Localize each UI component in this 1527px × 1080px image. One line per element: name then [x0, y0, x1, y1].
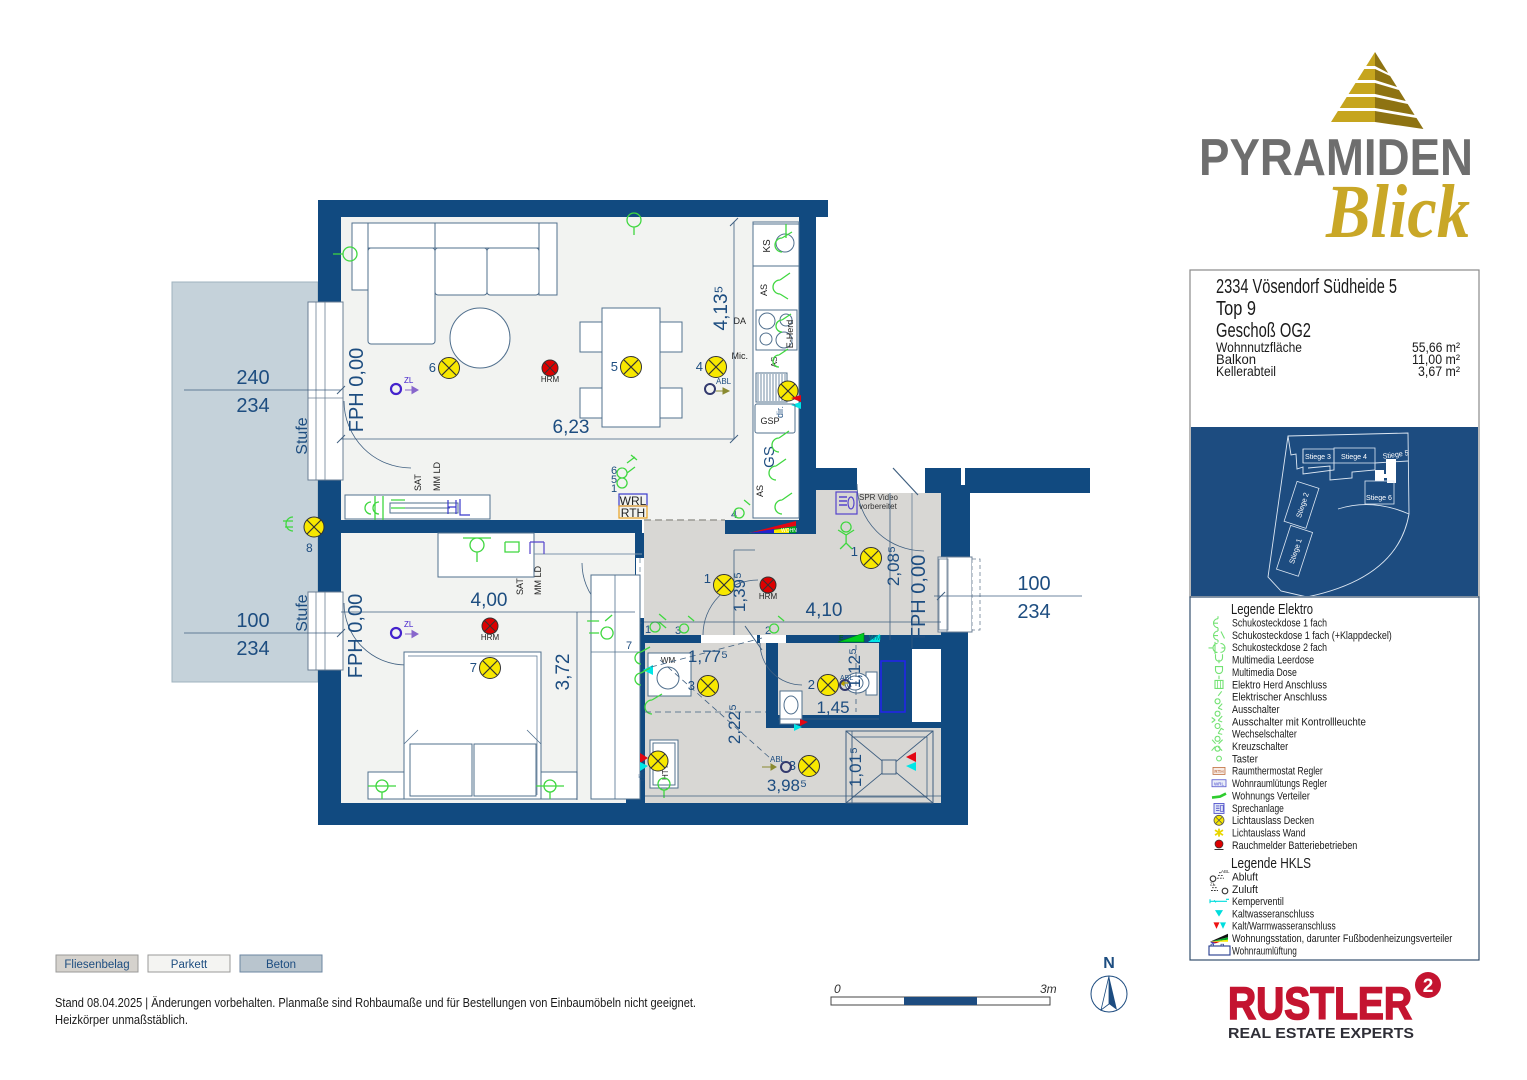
svg-text:ZL: ZL [404, 620, 414, 629]
svg-text:Abluft: Abluft [1232, 872, 1258, 884]
svg-text:ZL: ZL [404, 376, 414, 385]
svg-text:Blick: Blick [1325, 170, 1470, 254]
svg-text:100: 100 [1017, 573, 1050, 595]
svg-text:E: E [839, 635, 844, 642]
svg-text:4,00: 4,00 [471, 590, 508, 611]
svg-text:Legende Elektro: Legende Elektro [1231, 601, 1313, 618]
svg-text:Stiege 6: Stiege 6 [1366, 493, 1392, 502]
svg-text:AS: AS [755, 485, 765, 497]
svg-text:3,98⁵: 3,98⁵ [767, 776, 807, 795]
svg-text:MM LD: MM LD [533, 566, 543, 596]
svg-text:Ausschalter mit Kontrollleucht: Ausschalter mit Kontrollleuchte [1232, 716, 1366, 728]
svg-text:Heizkörper unmaßstäblich.: Heizkörper unmaßstäblich. [55, 1013, 188, 1027]
svg-text:1,45: 1,45 [816, 698, 849, 717]
svg-text:7: 7 [626, 640, 632, 652]
svg-text:RUSTLER: RUSTLER [1228, 978, 1412, 1029]
svg-text:6: 6 [429, 360, 436, 375]
svg-text:Kellerabteil: Kellerabteil [1216, 363, 1276, 379]
svg-text:100: 100 [236, 610, 269, 632]
svg-text:234: 234 [236, 638, 269, 660]
svg-text:HRM: HRM [481, 633, 500, 642]
svg-text:Multimedia Leerdose: Multimedia Leerdose [1232, 655, 1314, 667]
svg-text:240: 240 [236, 367, 269, 389]
svg-text:1: 1 [611, 483, 617, 495]
svg-text:2: 2 [1423, 976, 1434, 997]
svg-text:SAT: SAT [515, 578, 525, 595]
svg-text:8: 8 [306, 541, 313, 555]
svg-text:4,13⁵: 4,13⁵ [711, 286, 732, 331]
svg-text:Wechselschalter: Wechselschalter [1232, 729, 1297, 741]
svg-text:234: 234 [236, 395, 269, 417]
svg-text:GS: GS [761, 446, 778, 468]
svg-text:dir.: dir. [637, 769, 647, 781]
svg-text:HRM: HRM [541, 375, 560, 384]
svg-text:FPH 0,00: FPH 0,00 [908, 555, 930, 639]
svg-text:Ausschalter: Ausschalter [1232, 704, 1280, 716]
svg-text:WRL: WRL [1214, 781, 1224, 786]
svg-text:Sprechanlage: Sprechanlage [1232, 803, 1284, 815]
svg-text:Rauchmelder Batteriebetrieben: Rauchmelder Batteriebetrieben [1232, 840, 1357, 852]
svg-text:1,12⁵: 1,12⁵ [845, 648, 864, 688]
svg-text:Zuluft: Zuluft [1232, 884, 1258, 896]
svg-text:Top 9: Top 9 [1216, 298, 1256, 320]
svg-text:0: 0 [834, 982, 841, 996]
svg-text:Stand 08.04.2025 | Änderungen: Stand 08.04.2025 | Änderungen vorbehalte… [55, 996, 696, 1010]
svg-text:Kreuzschalter: Kreuzschalter [1232, 741, 1288, 753]
svg-text:5: 5 [611, 359, 618, 374]
svg-text:E-Herd: E-Herd [785, 320, 795, 349]
svg-text:FPH 0,00: FPH 0,00 [346, 348, 368, 432]
svg-text:Wohnraumlütungs Regler: Wohnraumlütungs Regler [1232, 778, 1327, 790]
svg-text:Taster: Taster [1232, 753, 1258, 765]
svg-text:Stufe: Stufe [294, 417, 311, 454]
svg-text:3,72: 3,72 [553, 654, 574, 691]
svg-text:Beton: Beton [266, 959, 296, 971]
svg-text:HRM: HRM [759, 592, 778, 601]
svg-text:6,23: 6,23 [553, 417, 590, 438]
svg-text:ABL: ABL [770, 755, 786, 764]
svg-text:Lichtauslass Wand: Lichtauslass Wand [1232, 828, 1305, 840]
svg-text:Kaltwasseranschluss: Kaltwasseranschluss [1232, 908, 1314, 920]
svg-text:Lichtauslass Decken: Lichtauslass Decken [1232, 815, 1314, 827]
svg-text:WOHN: WOHN [781, 528, 797, 534]
svg-text:AS: AS [759, 284, 769, 296]
svg-text:DA: DA [733, 316, 746, 326]
svg-text:2: 2 [808, 677, 815, 692]
svg-text:Elektro Herd Anschluss: Elektro Herd Anschluss [1232, 679, 1327, 691]
svg-text:RTH: RTH [621, 506, 645, 520]
svg-text:3m: 3m [1040, 982, 1057, 996]
svg-text:2,22⁵: 2,22⁵ [725, 704, 744, 744]
svg-text:Multimedia Dose: Multimedia Dose [1232, 667, 1297, 679]
svg-text:Wohnungsstation, darunter Fußb: Wohnungsstation, darunter Fußbodenheizun… [1232, 933, 1453, 945]
svg-text:Fliesenbelag: Fliesenbelag [64, 959, 129, 971]
svg-text:KS: KS [762, 239, 773, 253]
svg-text:Parkett: Parkett [171, 959, 208, 971]
svg-text:SAT: SAT [413, 474, 423, 491]
svg-text:3,67 m²: 3,67 m² [1418, 363, 1460, 379]
svg-text:N: N [1103, 955, 1115, 972]
svg-text:GSP: GSP [760, 416, 779, 426]
svg-text:Wohnraumlüftung: Wohnraumlüftung [1232, 945, 1297, 957]
svg-text:Stiege 3: Stiege 3 [1305, 452, 1331, 461]
svg-text:Schukosteckdose 2 fach: Schukosteckdose 2 fach [1232, 642, 1327, 654]
svg-text:Elektrischer Anschluss: Elektrischer Anschluss [1232, 692, 1327, 704]
svg-text:1,39⁵: 1,39⁵ [730, 572, 749, 612]
svg-text:ABL: ABL [716, 377, 732, 386]
svg-text:2,08⁵: 2,08⁵ [884, 546, 903, 586]
svg-text:1,01⁵: 1,01⁵ [846, 747, 865, 787]
svg-text:Schukosteckdose 1 fach: Schukosteckdose 1 fach [1232, 618, 1327, 630]
svg-text:Stiege 4: Stiege 4 [1341, 452, 1367, 461]
svg-text:ABL: ABL [1221, 869, 1230, 874]
svg-text:vorbereitet: vorbereitet [859, 502, 898, 511]
svg-text:Kemperventil: Kemperventil [1232, 896, 1284, 908]
svg-text:WM: WM [869, 635, 882, 642]
svg-text:Wohnungs Verteiler: Wohnungs Verteiler [1232, 790, 1310, 802]
svg-text:REAL ESTATE EXPERTS: REAL ESTATE EXPERTS [1228, 1025, 1414, 1042]
svg-text:1,77⁵: 1,77⁵ [688, 647, 728, 666]
svg-text:1: 1 [851, 544, 858, 559]
svg-text:4: 4 [696, 359, 703, 374]
svg-text:Legende HKLS: Legende HKLS [1231, 855, 1311, 872]
svg-text:4,10: 4,10 [806, 600, 843, 621]
svg-text:Kalt/Warmwasseranschluss: Kalt/Warmwasseranschluss [1232, 921, 1336, 933]
svg-text:234: 234 [1017, 601, 1050, 623]
svg-text:7: 7 [470, 660, 477, 675]
svg-text:RTH: RTH [1214, 769, 1223, 774]
svg-text:MM LD: MM LD [432, 462, 442, 492]
svg-text:1: 1 [704, 571, 711, 586]
svg-text:SPR Video: SPR Video [859, 493, 899, 502]
svg-text:Stufe: Stufe [294, 594, 311, 631]
svg-text:FPH 0,00: FPH 0,00 [345, 594, 367, 678]
svg-text:ZL: ZL [1210, 882, 1216, 887]
svg-text:Raumthermostat Regler: Raumthermostat Regler [1232, 766, 1323, 778]
svg-text:2334 Vösendorf Südheide 5: 2334 Vösendorf Südheide 5 [1216, 276, 1397, 298]
svg-text:Schukosteckdose 1 fach (+Klapp: Schukosteckdose 1 fach (+Klappdeckel) [1232, 630, 1392, 642]
